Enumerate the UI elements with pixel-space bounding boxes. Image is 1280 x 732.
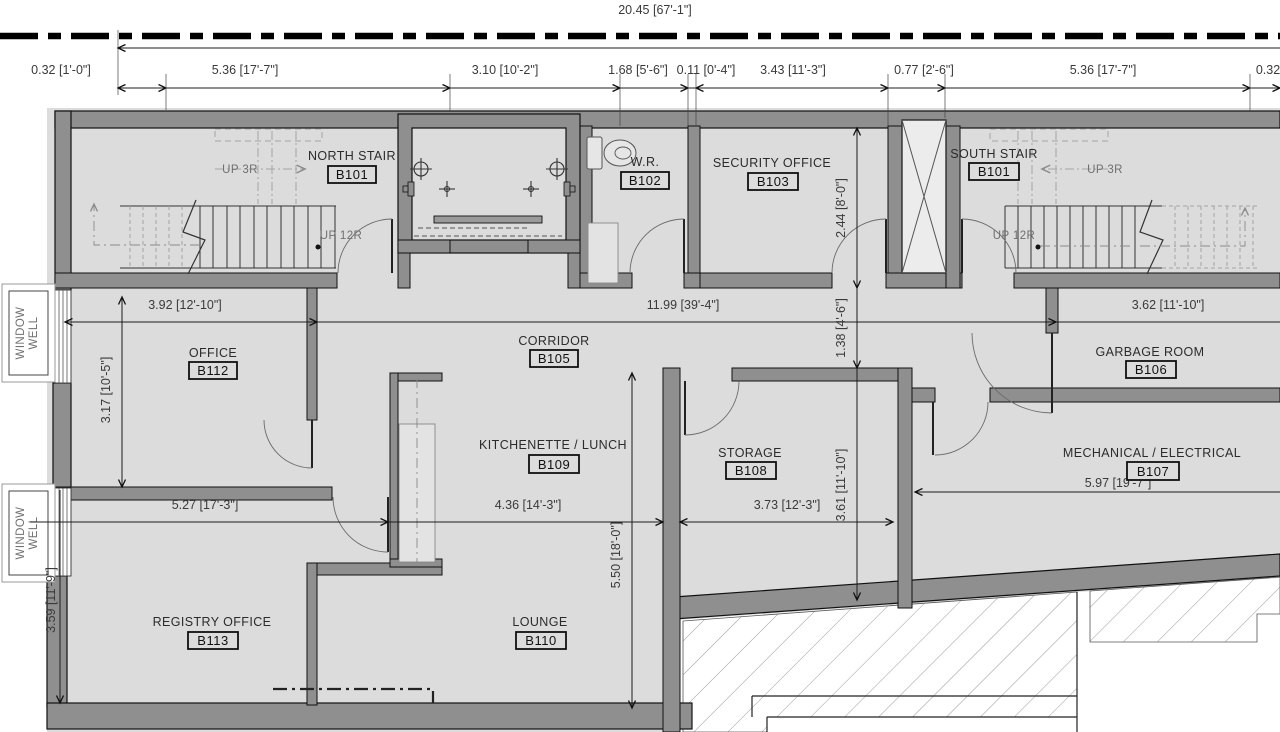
wall-wr-east (688, 126, 700, 273)
room-name-wr: W.R. (631, 155, 660, 169)
elevator-rail-right (570, 186, 575, 192)
room-number: B106 (1135, 362, 1167, 377)
room-number: B102 (629, 173, 661, 188)
room-name-lounge: LOUNGE (512, 615, 567, 629)
floor-plan-canvas: WINDOW WELL WINDOW WELL (0, 0, 1280, 732)
stair-path-start-dot (1036, 245, 1041, 250)
wall-garbage-south (990, 388, 1280, 402)
dim-label: 5.36 [17'-7"] (1070, 63, 1137, 77)
room-name-security: SECURITY OFFICE (713, 156, 831, 170)
stair-path-start-dot (316, 245, 321, 250)
dim-label: 0.32 [1'-0"] (31, 63, 91, 77)
dim-label: 1.68 [5'-6"] (608, 63, 668, 77)
room-number: B108 (735, 463, 767, 478)
dim-label: 3.10 [10'-2"] (472, 63, 539, 77)
room-name-registry: REGISTRY OFFICE (153, 615, 272, 629)
wall-corridor-north-f (1014, 273, 1280, 288)
dim-label: 3.73 [12'-3"] (754, 498, 821, 512)
wall-mech-north-stub (912, 388, 935, 402)
wall-corridor-north-d (700, 273, 832, 288)
dim-label: 0.32 (1256, 63, 1280, 77)
window-well-label: WINDOW (15, 507, 27, 560)
wall-exterior-north (55, 111, 1280, 128)
toilet-tank (587, 137, 602, 169)
dim-label: 3.17 [10'-5"] (99, 357, 113, 424)
window-well-label: WELL (28, 516, 40, 549)
wall-office-east (307, 288, 317, 420)
room-number: B113 (197, 633, 228, 648)
up-3r-label-south: UP 3R (1087, 164, 1123, 176)
wall-corridor-north-c (684, 273, 700, 288)
vent-shaft (902, 120, 946, 273)
window-well-label: WELL (28, 316, 40, 349)
room-name-south-stair: SOUTH STAIR (950, 147, 1038, 161)
dim-label: 3.43 [11'-3"] (760, 63, 826, 77)
dim-label: 0.77 [2'-6"] (894, 63, 954, 77)
wall-pantry-west (390, 373, 398, 567)
room-name-storage: STORAGE (718, 446, 782, 460)
up-12r-label-south: UP 12R (993, 230, 1035, 242)
window-well-label: WINDOW (15, 307, 27, 360)
wall-security-east (888, 126, 902, 273)
room-name-mechanical: MECHANICAL / ELECTRICAL (1063, 446, 1241, 460)
room-number: B112 (197, 363, 228, 378)
room-number: B101 (336, 167, 368, 182)
dim-label: 2.44 [8'-0"] (834, 178, 848, 238)
dim-label: 3.62 [11'-10"] (1132, 298, 1205, 312)
wall-kitchen-lounge-east (663, 368, 680, 732)
room-number: B105 (538, 351, 570, 366)
elevator-rail-bracket-left (408, 182, 414, 196)
wr-vanity (588, 223, 618, 283)
wall-mech-west (898, 368, 912, 608)
dim-label: 3.61 [11'-10"] (834, 449, 848, 522)
dim-label: 3.59 [11'-9"] (44, 567, 58, 633)
up-3r-label-north: UP 3R (222, 164, 258, 176)
dim-label: 0.11 [0'-4"] (677, 63, 736, 77)
wall-registry-lounge (307, 563, 317, 705)
elevator-rail-bracket-right (564, 182, 570, 196)
up-12r-label-north: UP 12R (320, 230, 362, 242)
dim-label: 11.99 [39'-4"] (647, 298, 720, 312)
dim-label: 5.50 [18'-0"] (609, 522, 623, 589)
room-name-office: OFFICE (189, 346, 237, 360)
wall-exterior-west-pier (53, 383, 71, 490)
elevator-lobby-wall-left (398, 253, 410, 288)
room-name-corridor: CORRIDOR (518, 334, 589, 348)
dim-label-overall: 20.45 [67'-1"] (618, 3, 692, 17)
elevator-lobby-wall-right (568, 253, 580, 288)
room-number: B110 (525, 633, 556, 648)
room-name-north-stair: NORTH STAIR (308, 149, 396, 163)
elevator-door-panel (434, 216, 542, 223)
floor-plan-page: WINDOW WELL WINDOW WELL (0, 0, 1280, 732)
dim-label: 3.92 [12'-10"] (148, 298, 222, 312)
dim-label: 4.36 [14'-3"] (495, 498, 562, 512)
room-number: B109 (538, 457, 570, 472)
wall-exterior-south (47, 703, 692, 729)
room-number: B107 (1137, 464, 1169, 479)
wall-storage-north (732, 368, 898, 381)
wall-exterior-west-upper (55, 111, 71, 290)
room-name-kitchenette: KITCHENETTE / LUNCH (479, 438, 627, 452)
elevator-jamb-right (528, 240, 580, 253)
wall-corridor-north-a (55, 273, 337, 288)
elevator-jamb-left (398, 240, 450, 253)
elevator-rail-left (403, 186, 408, 192)
dim-label: 5.27 [17'-3"] (172, 498, 239, 512)
room-number: B101 (978, 164, 1010, 179)
wall-garbage-west-stub (1046, 288, 1058, 333)
dim-label: 5.36 [17'-7"] (212, 63, 279, 77)
dim-label: 1.38 [4'-6"] (834, 298, 848, 358)
room-name-garbage: GARBAGE ROOM (1096, 345, 1205, 359)
room-number: B103 (757, 174, 789, 189)
